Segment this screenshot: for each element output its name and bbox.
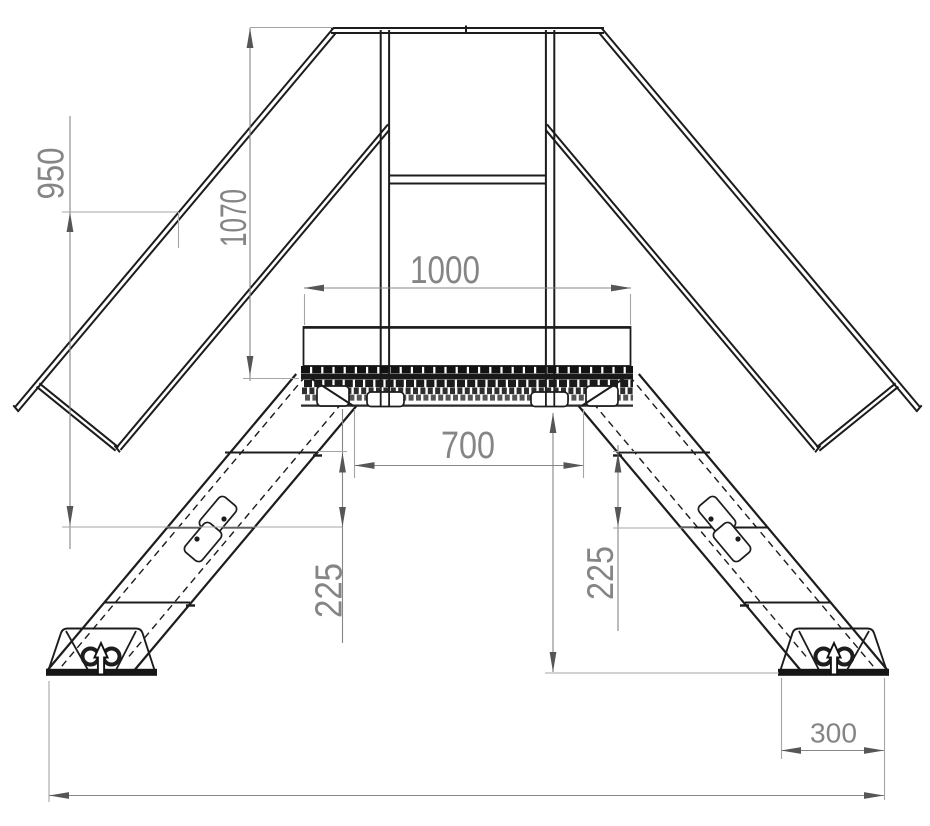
svg-text:300: 300 — [810, 718, 857, 749]
svg-text:1000: 1000 — [410, 249, 480, 292]
svg-text:225: 225 — [309, 563, 351, 618]
svg-text:225: 225 — [580, 546, 621, 600]
svg-text:1070: 1070 — [213, 189, 254, 247]
svg-text:700: 700 — [441, 425, 495, 467]
svg-text:950: 950 — [31, 148, 72, 200]
